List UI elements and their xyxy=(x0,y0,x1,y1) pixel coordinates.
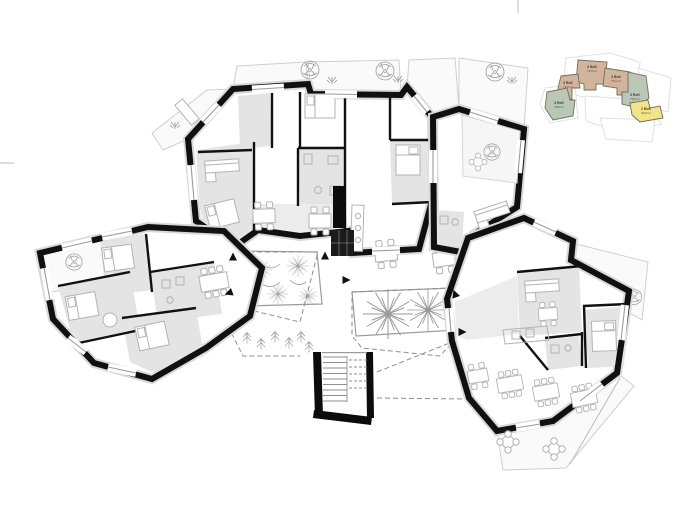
bed xyxy=(396,145,420,175)
courtyard-east-burst xyxy=(407,289,449,331)
dark-kitchen-island xyxy=(331,230,354,256)
wing-west xyxy=(40,227,262,379)
unit-a-area: 74,5 m² xyxy=(587,69,597,73)
bed xyxy=(101,244,134,272)
unit-f-area: 49,9 m² xyxy=(641,111,651,115)
keyplan: 2 RoK 74,5 m² 3 RoK 79,2 m² 2 RoK 74,6 m… xyxy=(540,53,671,142)
unit-c-area: 74,6 m² xyxy=(611,79,621,83)
conifer-row xyxy=(243,331,313,352)
armchair xyxy=(103,313,117,327)
bed xyxy=(65,292,99,321)
black-core xyxy=(333,186,346,228)
courtyard-east-border xyxy=(352,288,458,336)
floor-plan-page: 2 RoK 74,5 m² 3 RoK 79,2 m² 2 RoK 74,6 m… xyxy=(0,0,690,511)
floor-plan-drawing: 2 RoK 74,5 m² 3 RoK 79,2 m² 2 RoK 74,6 m… xyxy=(0,0,690,511)
bed xyxy=(591,321,616,352)
stair-core xyxy=(313,352,374,425)
unit-d-area: 79,6 m² xyxy=(630,97,640,101)
unit-e-area: 79,8 m² xyxy=(554,105,564,109)
courtyard-east-burst xyxy=(363,289,413,339)
unit-b-area: 79,2 m² xyxy=(563,85,573,89)
stair-treads xyxy=(323,356,367,402)
